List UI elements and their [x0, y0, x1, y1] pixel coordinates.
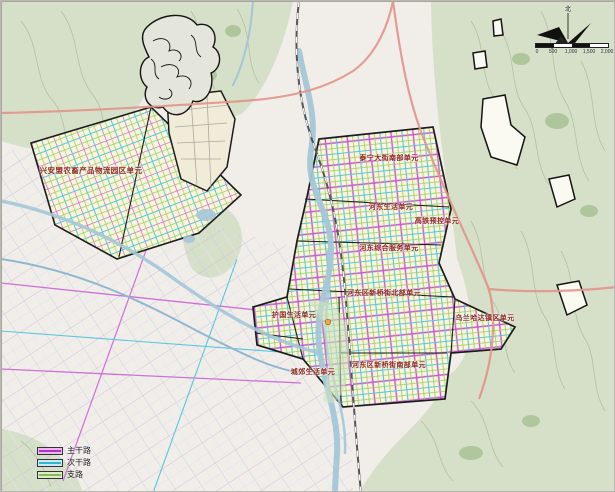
unit-label-hedong-service: 河东综合服务单元: [359, 245, 418, 253]
map-canvas: [1, 1, 615, 492]
unit-label-huguo-living: 护国生活单元: [272, 312, 316, 320]
legend-item-secondary-road: 次干路: [37, 458, 91, 467]
legend: 主干路 次干路 支路: [37, 446, 91, 482]
scale-bar-ticks: 0 500 1,000 1,500 2,000: [535, 48, 607, 55]
unit-label-wulanhada-town: 乌兰哈达镇区单元: [455, 315, 514, 323]
north-label: 北: [562, 4, 574, 13]
unit-label-logistics-park: 兴安盟农畜产品物流园区单元: [40, 167, 143, 175]
legend-item-branch-road: 支路: [37, 470, 91, 479]
secondary-road-swatch: [37, 459, 63, 467]
scale-bar: 0 500 1,000 1,500 2,000: [535, 43, 611, 55]
scale-tick: 1,000: [565, 49, 578, 55]
unit-label-xinqiao-north: 河东区新桥街北部单元: [347, 290, 421, 298]
unit-label-xinqiao-south: 河东区新桥街南部单元: [352, 362, 426, 370]
secondary-road-label: 次干路: [67, 457, 91, 468]
scale-tick: 1,500: [583, 49, 596, 55]
main-road-swatch: [37, 447, 63, 455]
unit-label-taining-street-s: 泰宁大街南部单元: [359, 155, 418, 163]
unit-label-hedong-living: 河东生活单元: [369, 204, 413, 212]
unit-label-chengjiao-living: 城郊生活单元: [291, 369, 335, 377]
branch-road-swatch: [37, 471, 63, 479]
main-road-label: 主干路: [67, 445, 91, 456]
poi-marker: [325, 319, 331, 325]
scale-tick: 0: [536, 49, 539, 55]
unit-label-hsr-control: 高铁预控单元: [415, 218, 459, 226]
branch-road-label: 支路: [67, 469, 83, 480]
scale-tick: 500: [549, 49, 557, 55]
legend-item-main-road: 主干路: [37, 446, 91, 455]
scale-tick: 2,000: [601, 49, 614, 55]
planning-map: 兴安盟农畜产品物流园区单元 泰宁大街南部单元 河东生活单元 高铁预控单元 河东综…: [0, 0, 615, 492]
